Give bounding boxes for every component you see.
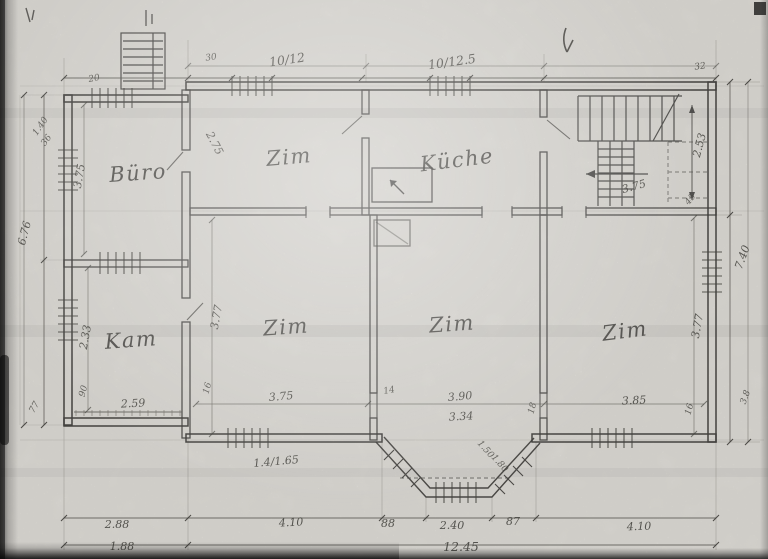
room-label-zim-sw: Zim bbox=[261, 313, 309, 340]
dim-zim-sw-width: 3.75 bbox=[268, 389, 294, 404]
scanned-floor-plan: Büro Zim Küche Kam Zim Zim Zim 20 30 10/… bbox=[0, 0, 768, 559]
top-right-corner-blot bbox=[754, 2, 766, 15]
dim-zim-se-width: 3.85 bbox=[621, 393, 646, 407]
dim-top-right: 32 bbox=[694, 61, 707, 73]
dim-bay-left: 88 bbox=[381, 517, 395, 530]
room-label-kam: Kam bbox=[103, 326, 158, 354]
room-label-buero: Büro bbox=[107, 159, 167, 187]
dim-bottom-sw: 4.10 bbox=[277, 515, 303, 529]
dim-total-width: 12.45 bbox=[443, 539, 479, 554]
dim-zim-s-small: 14 bbox=[383, 385, 396, 397]
dim-top-left: 30 bbox=[205, 52, 218, 64]
dim-bottom-se: 4.10 bbox=[626, 520, 652, 534]
dim-bay-mid: 2.40 bbox=[439, 519, 465, 532]
paper-texture bbox=[0, 0, 768, 559]
room-label-zim-top: Zim bbox=[264, 143, 313, 171]
dim-kam-width: 2.59 bbox=[119, 396, 145, 410]
dim-bay-right: 87 bbox=[506, 515, 520, 528]
dim-zim-s-width-2: 3.34 bbox=[448, 409, 473, 423]
dim-bottom-left-2: 1.88 bbox=[110, 540, 135, 553]
floorplan-canvas: Büro Zim Küche Kam Zim Zim Zim 20 30 10/… bbox=[0, 0, 768, 559]
room-label-zim-s: Zim bbox=[427, 310, 475, 337]
dim-bottom-left-1: 2.88 bbox=[104, 518, 130, 531]
dim-zim-s-width-1: 3.90 bbox=[447, 389, 473, 404]
